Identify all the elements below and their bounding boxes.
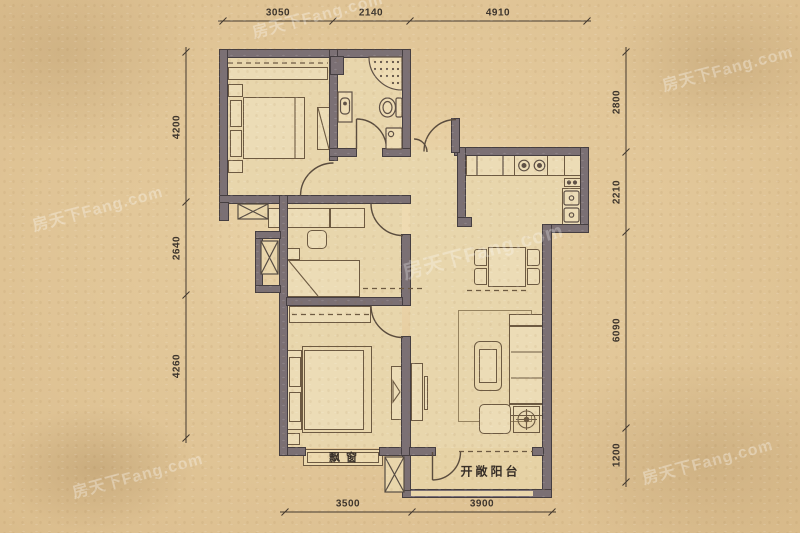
hob-dot	[568, 181, 571, 184]
hob-dot	[574, 181, 577, 184]
bathroom-fixtures	[338, 57, 402, 149]
dim-label: 4910	[486, 8, 510, 19]
bedroom3-door-arc	[371, 306, 403, 338]
bedroom1-door-arc	[301, 163, 334, 196]
dimension-lines	[183, 18, 630, 516]
kitchen-details	[477, 156, 579, 222]
burner-dot	[538, 164, 542, 168]
dim-label: 3900	[470, 499, 494, 510]
sink-drain	[569, 196, 573, 200]
plant-center-dot	[524, 417, 528, 421]
sofa-cushion-lines	[511, 352, 543, 378]
burner-dot	[522, 164, 526, 168]
sink-basin-icon	[564, 208, 579, 222]
dim-label: 4200	[172, 115, 183, 139]
dim-label: 2800	[612, 90, 623, 114]
entry-door-arc	[424, 120, 456, 152]
floor-plan-canvas: 3050 2140 4910 4200 2640 4260 2800 2210 …	[0, 0, 800, 533]
sink-basin-icon	[564, 191, 579, 205]
toilet-bowl	[383, 102, 392, 114]
balcony-door-arc	[433, 452, 461, 480]
dim-label: 2210	[612, 180, 623, 204]
counter-divider	[477, 156, 503, 175]
dim-label: 2640	[172, 236, 183, 260]
bedroom2-door-arc	[371, 204, 403, 236]
dim-label: 6090	[612, 318, 623, 342]
cabinet-diagonal	[318, 108, 329, 149]
linework-overlay	[0, 0, 800, 533]
dim-label: 3050	[266, 8, 290, 19]
furniture-details	[289, 98, 543, 430]
open-balcony-label: 开敞阳台	[457, 463, 520, 480]
shaft-boxes	[238, 204, 404, 492]
washbasin-icon	[341, 98, 350, 114]
toilet-tank	[396, 98, 402, 117]
dim-label: 3500	[336, 499, 360, 510]
washing-machine-icon	[386, 128, 402, 149]
bay-window-label: 飘窗	[323, 449, 363, 465]
bathroom-door-arc	[357, 119, 387, 149]
dim-label: 4260	[172, 354, 183, 378]
tv-icon	[393, 381, 400, 402]
door-arcs	[301, 119, 461, 480]
dim-label: 2140	[359, 8, 383, 19]
basin-drain	[344, 102, 347, 105]
dim-label: 1200	[612, 443, 623, 467]
sink-drain	[569, 213, 573, 217]
bed2-blanket-fold	[289, 261, 318, 296]
